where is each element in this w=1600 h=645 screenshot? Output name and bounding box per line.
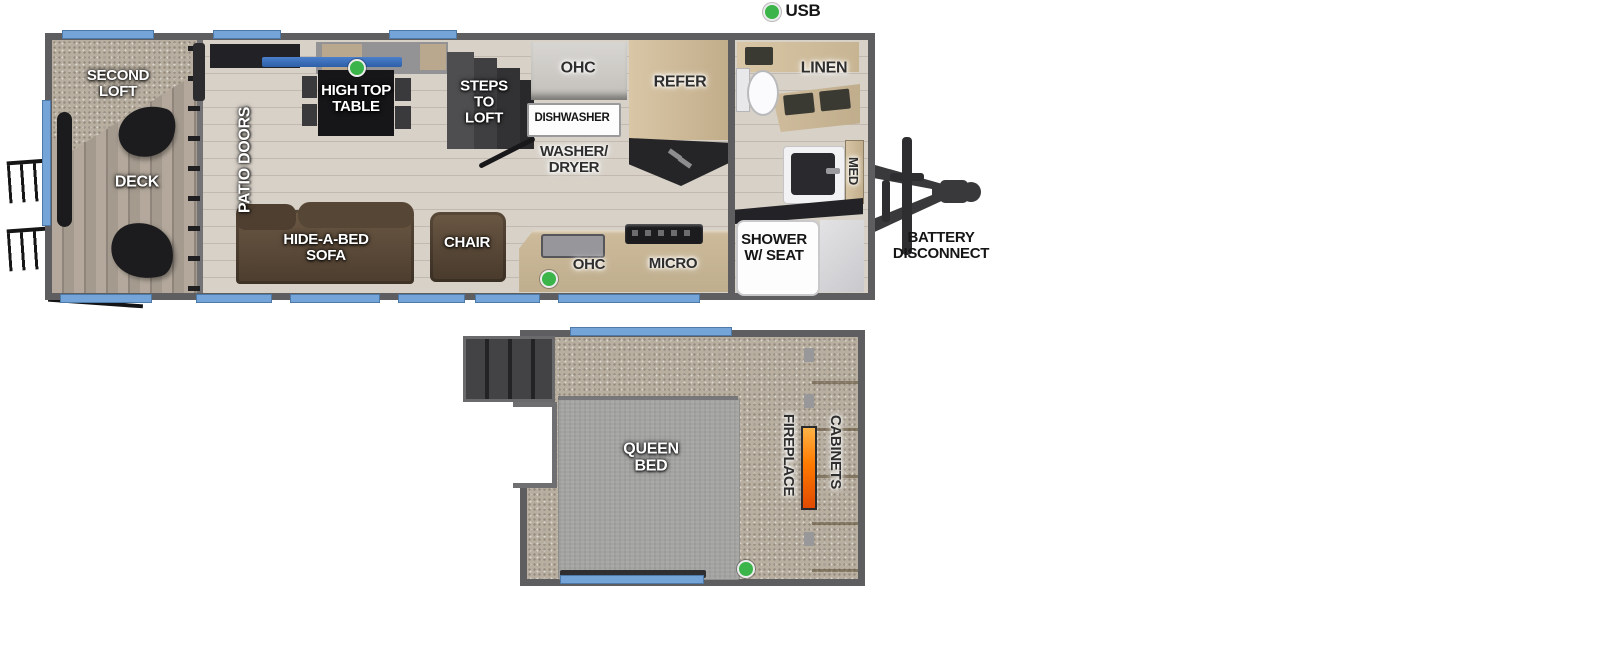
- high-top-table-label: HIGH TOP TABLE: [321, 83, 391, 115]
- window-top-1: [62, 30, 154, 39]
- window-top-2: [213, 30, 281, 39]
- window-bottom-4: [398, 294, 465, 303]
- chair-label: CHAIR: [444, 235, 490, 251]
- cabinet-grate-1: [745, 47, 773, 65]
- ohc-bottom-label: OHC: [573, 257, 605, 273]
- cabinet-wood-inset-2: [420, 44, 446, 70]
- table-stool-1: [302, 76, 317, 98]
- window-bottom-5: [475, 294, 540, 303]
- shower-glass: [820, 220, 864, 292]
- usb-legend-dot-icon: [763, 3, 781, 21]
- usb-dot-table: [348, 59, 366, 77]
- usb-dot-kitchen: [540, 270, 558, 288]
- micro-label: MICRO: [649, 256, 698, 272]
- usb-legend-label: USB: [786, 2, 821, 20]
- window-left: [42, 100, 51, 226]
- table-stool-4: [395, 106, 411, 129]
- deck-label: DECK: [115, 173, 159, 190]
- queen-bed-label: QUEEN BED: [623, 441, 678, 476]
- rear-railing-lower: [7, 227, 50, 272]
- bedroom-window-top: [570, 327, 732, 336]
- usb-dot-bedroom: [737, 560, 755, 578]
- dishwasher-label: DISHWASHER: [535, 112, 610, 124]
- cabinet-grate-3: [819, 88, 851, 111]
- floorplan-canvas: USB: [0, 0, 1600, 645]
- shower-label: SHOWER W/ SEAT: [741, 232, 807, 264]
- ohc-top-label: OHC: [561, 59, 596, 76]
- window-top-3: [389, 30, 457, 39]
- window-bottom-1: [60, 294, 152, 303]
- bedroom-stairs: [463, 336, 555, 402]
- linen-label: LINEN: [801, 59, 848, 76]
- bathroom-sink: [791, 153, 835, 195]
- sofa-back-cushion-2: [298, 202, 414, 228]
- fireplace-label: FIREPLACE: [780, 414, 796, 496]
- bedroom-window-bottom: [560, 575, 704, 584]
- washer-dryer-label: WASHER/ DRYER: [540, 144, 608, 176]
- patio-doors-label: PATIO DOORS: [236, 107, 253, 213]
- window-bottom-2: [196, 294, 272, 303]
- stairwell-notch: [513, 402, 557, 488]
- steps-to-loft-label: STEPS TO LOFT: [460, 79, 508, 128]
- bathroom-faucet: [826, 168, 840, 174]
- table-stool-2: [302, 104, 317, 126]
- window-bottom-3: [290, 294, 380, 303]
- bathroom-wall: [728, 40, 735, 293]
- stove-burners: [632, 230, 696, 236]
- window-bar-counter: [262, 57, 402, 67]
- table-stool-3: [395, 78, 411, 101]
- patio-door-panel: [193, 43, 205, 101]
- kitchen-sink: [541, 234, 605, 258]
- fireplace-flame: [801, 426, 817, 510]
- refer-label: REFER: [654, 73, 707, 90]
- second-loft-label: SECOND LOFT: [87, 68, 149, 100]
- hide-a-bed-sofa-label: HIDE-A-BED SOFA: [283, 232, 368, 264]
- battery-disconnect-label: BATTERY DISCONNECT: [893, 230, 989, 262]
- toilet-bowl: [747, 70, 779, 116]
- window-bottom-6: [558, 294, 700, 303]
- queen-bed: [558, 398, 740, 580]
- cabinet-grate-2: [783, 92, 815, 115]
- bed-head-edge: [558, 396, 738, 400]
- med-label: MED: [846, 157, 860, 185]
- cabinets-label: CABINETS: [827, 415, 843, 489]
- deck-grill: [57, 112, 72, 227]
